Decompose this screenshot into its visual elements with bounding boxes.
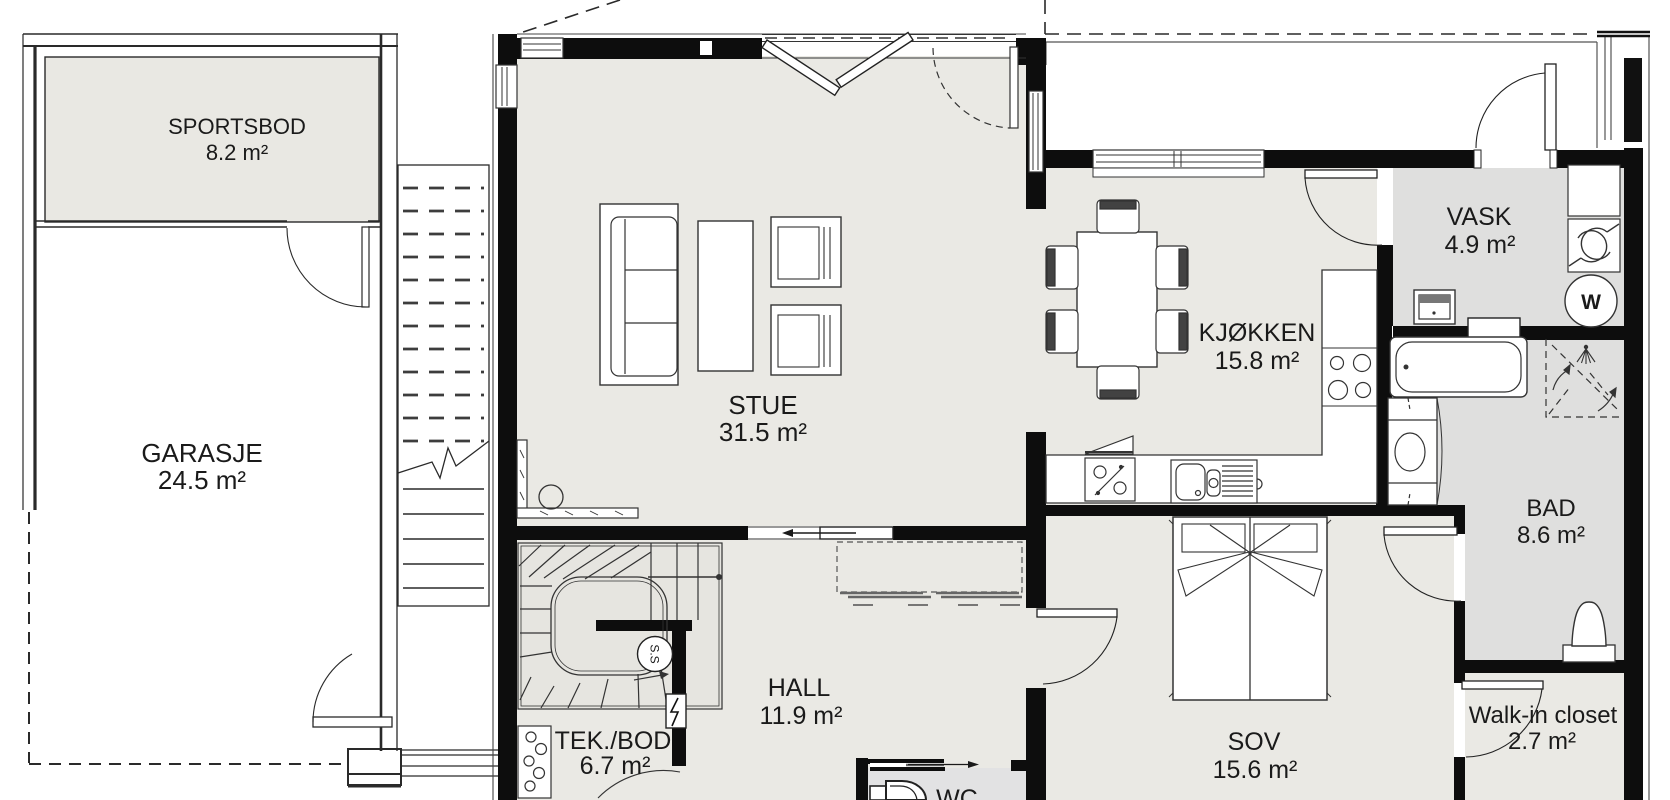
svg-text:15.8 m²: 15.8 m² xyxy=(1215,347,1300,375)
svg-text:WC: WC xyxy=(936,785,978,800)
svg-text:31.5 m²: 31.5 m² xyxy=(719,417,807,447)
svg-text:TEK./BOD: TEK./BOD xyxy=(555,727,672,755)
svg-text:W: W xyxy=(1581,291,1601,314)
svg-text:4.9 m²: 4.9 m² xyxy=(1445,231,1516,259)
svg-text:STUE: STUE xyxy=(728,390,797,420)
svg-text:24.5 m²: 24.5 m² xyxy=(158,465,246,495)
svg-text:SOV: SOV xyxy=(1228,728,1281,756)
svg-text:BAD: BAD xyxy=(1526,495,1575,522)
svg-text:HALL: HALL xyxy=(768,674,831,702)
svg-text:8.6 m²: 8.6 m² xyxy=(1517,522,1585,549)
svg-text:KJØKKEN: KJØKKEN xyxy=(1199,319,1316,347)
svg-text:S.S: S.S xyxy=(648,644,662,663)
svg-text:VASK: VASK xyxy=(1447,203,1512,231)
svg-text:6.7 m²: 6.7 m² xyxy=(580,752,651,780)
svg-text:Walk-in closet: Walk-in closet xyxy=(1469,702,1618,729)
svg-text:11.9 m²: 11.9 m² xyxy=(760,702,843,730)
svg-text:GARASJE: GARASJE xyxy=(141,438,262,468)
svg-text:SPORTSBOD: SPORTSBOD xyxy=(168,114,306,139)
svg-text:2.7 m²: 2.7 m² xyxy=(1508,728,1576,755)
svg-text:15.6 m²: 15.6 m² xyxy=(1213,756,1298,784)
svg-text:8.2 m²: 8.2 m² xyxy=(206,140,268,165)
